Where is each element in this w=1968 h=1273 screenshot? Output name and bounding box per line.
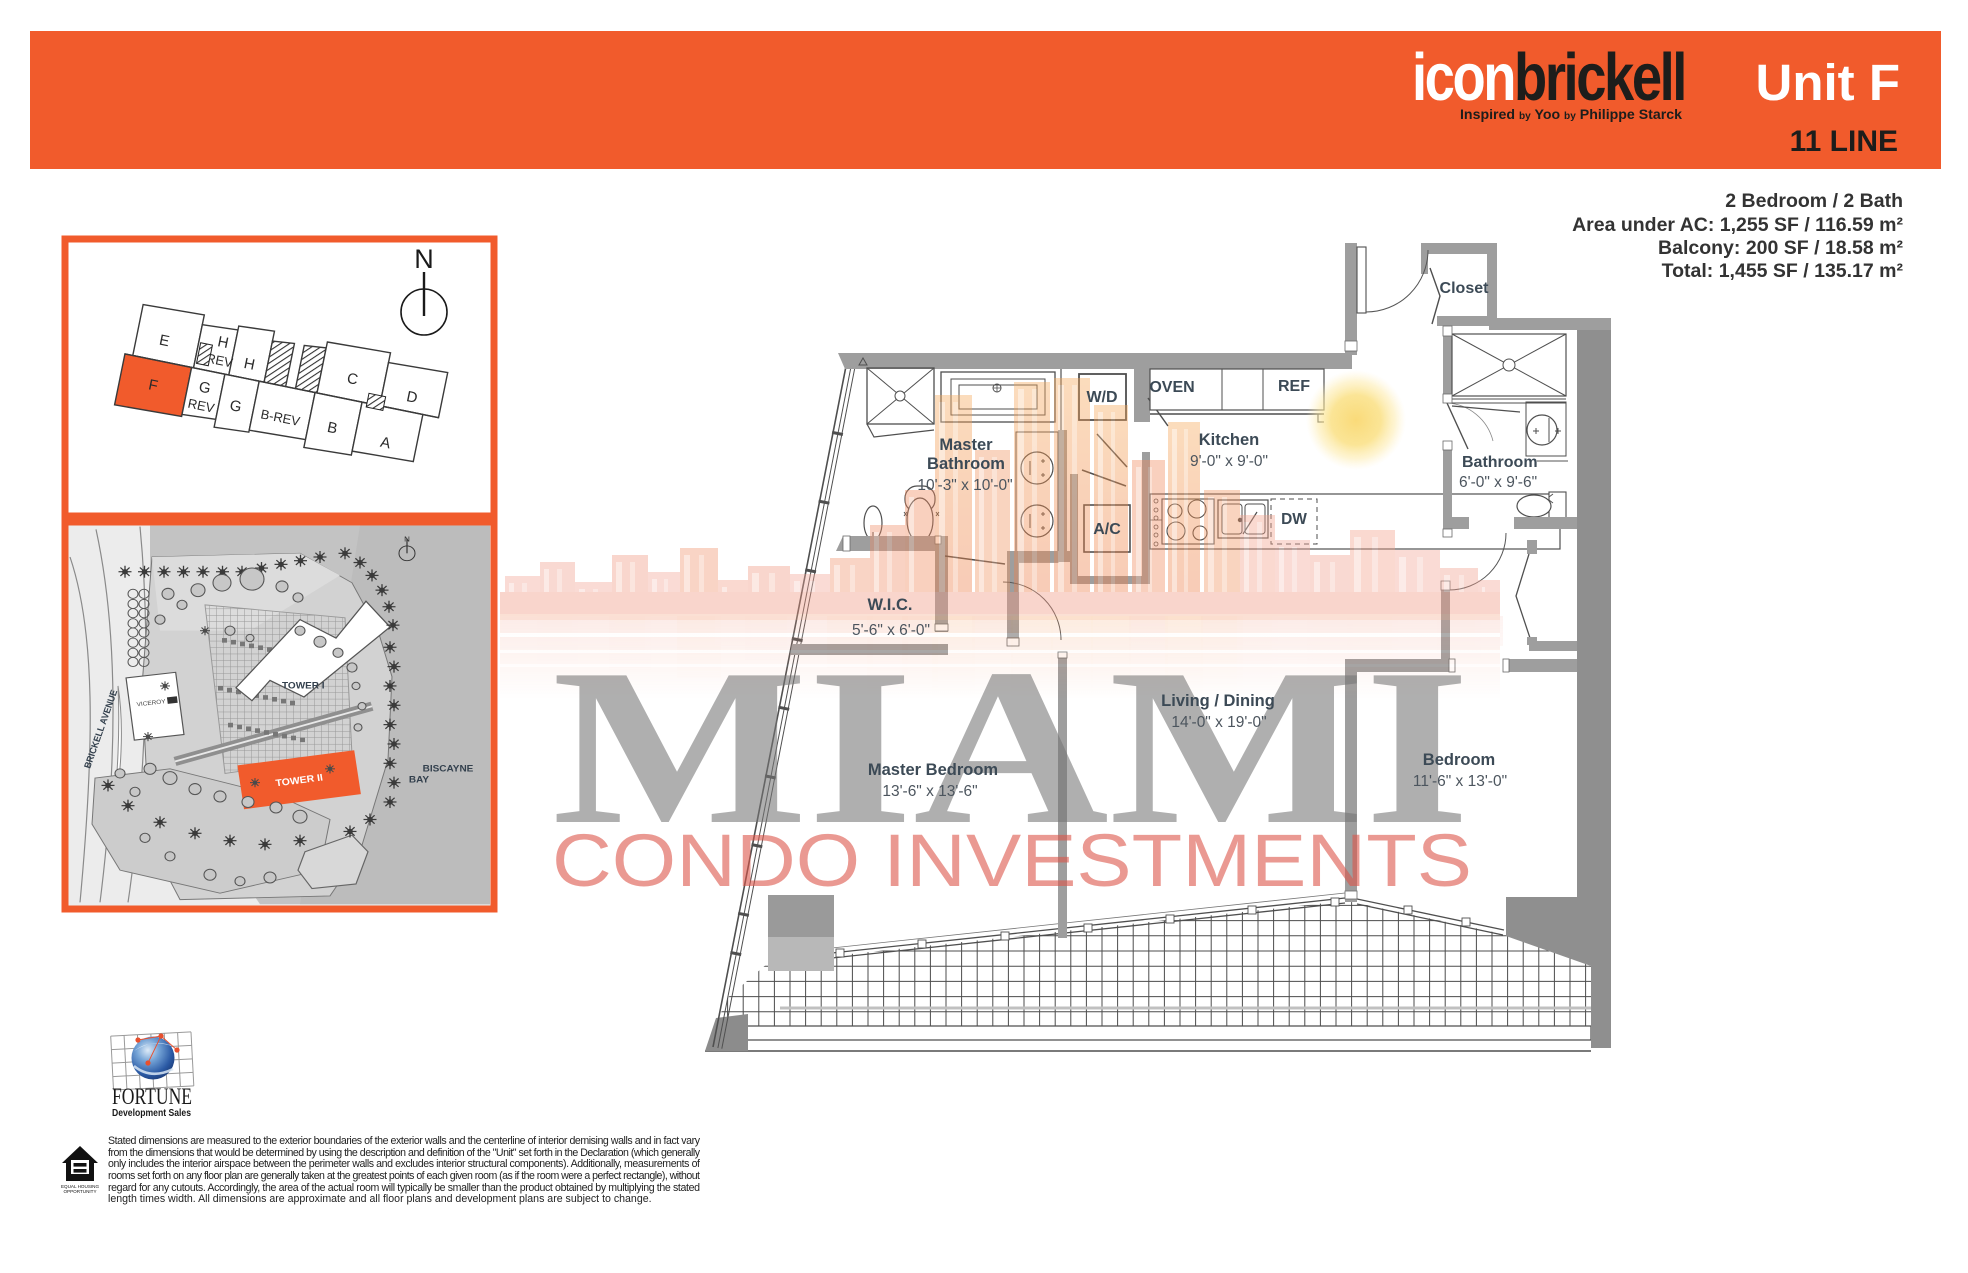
svg-text:2 Bedroom / 2 Bath: 2 Bedroom / 2 Bath: [1725, 190, 1903, 212]
svg-text:Balcony: 200 SF / 18.58 m²: Balcony: 200 SF / 18.58 m²: [1658, 237, 1903, 259]
svg-text:Stated dimensions are measured: Stated dimensions are measured to the ex…: [108, 1135, 701, 1147]
svg-text:BAY: BAY: [409, 775, 430, 786]
svg-text:BISCAYNE: BISCAYNE: [423, 764, 474, 775]
svg-text:TOWER I: TOWER I: [282, 681, 325, 692]
svg-text:Bathroom: Bathroom: [927, 455, 1005, 473]
svg-text:length times width. All dimens: length times width. All dimensions are a…: [108, 1193, 652, 1205]
svg-text:Bedroom: Bedroom: [1423, 751, 1495, 769]
svg-text:rooms set forth on any floor p: rooms set forth on any floor plan are ge…: [108, 1170, 700, 1182]
svg-text:iconbrickell: iconbrickell: [1412, 40, 1685, 115]
svg-text:N: N: [404, 535, 410, 544]
svg-text:DW: DW: [1281, 511, 1307, 528]
svg-text:Master Bedroom: Master Bedroom: [868, 761, 998, 779]
svg-text:REF: REF: [1278, 378, 1310, 395]
svg-text:5'-6" x 6'-0": 5'-6" x 6'-0": [852, 622, 930, 639]
svg-text:6'-0" x 9'-6": 6'-0" x 9'-6": [1459, 474, 1537, 491]
svg-text:Living / Dining: Living / Dining: [1161, 692, 1275, 710]
svg-text:only includes the interior air: only includes the interior airspace betw…: [108, 1158, 700, 1170]
svg-text:Total: 1,455 SF / 135.17 m²: Total: 1,455 SF / 135.17 m²: [1662, 260, 1904, 282]
svg-text:Development Sales: Development Sales: [112, 1107, 191, 1119]
svg-text:13'-6" x 13'-6": 13'-6" x 13'-6": [882, 783, 977, 800]
svg-text:11 LINE: 11 LINE: [1790, 125, 1898, 158]
svg-text:9'-0" x 9'-0": 9'-0" x 9'-0": [1190, 453, 1268, 470]
svg-text:N: N: [414, 244, 434, 274]
svg-text:14'-0" x 19'-0": 14'-0" x 19'-0": [1171, 714, 1266, 731]
svg-text:Unit F: Unit F: [1756, 54, 1900, 111]
svg-text:10'-3" x 10'-0": 10'-3" x 10'-0": [917, 477, 1012, 494]
svg-text:FORTUNE: FORTUNE: [112, 1084, 192, 1109]
svg-text:CONDO INVESTMENTS: CONDO INVESTMENTS: [552, 819, 1472, 902]
svg-text:A/C: A/C: [1093, 521, 1121, 538]
svg-text:11'-6" x 13'-0": 11'-6" x 13'-0": [1413, 773, 1507, 790]
svg-text:Master: Master: [939, 436, 993, 454]
svg-text:Closet: Closet: [1440, 280, 1490, 297]
svg-text:W.I.C.: W.I.C.: [868, 596, 913, 614]
svg-text:OPPORTUNITY: OPPORTUNITY: [63, 1189, 96, 1194]
svg-text:W/D: W/D: [1086, 389, 1117, 406]
svg-text:Bathroom: Bathroom: [1462, 454, 1538, 471]
svg-text:OVEN: OVEN: [1149, 379, 1194, 396]
svg-text:Area under AC: 1,255 SF / 116.: Area under AC: 1,255 SF / 116.59 m²: [1572, 214, 1903, 236]
svg-text:Kitchen: Kitchen: [1199, 431, 1260, 449]
